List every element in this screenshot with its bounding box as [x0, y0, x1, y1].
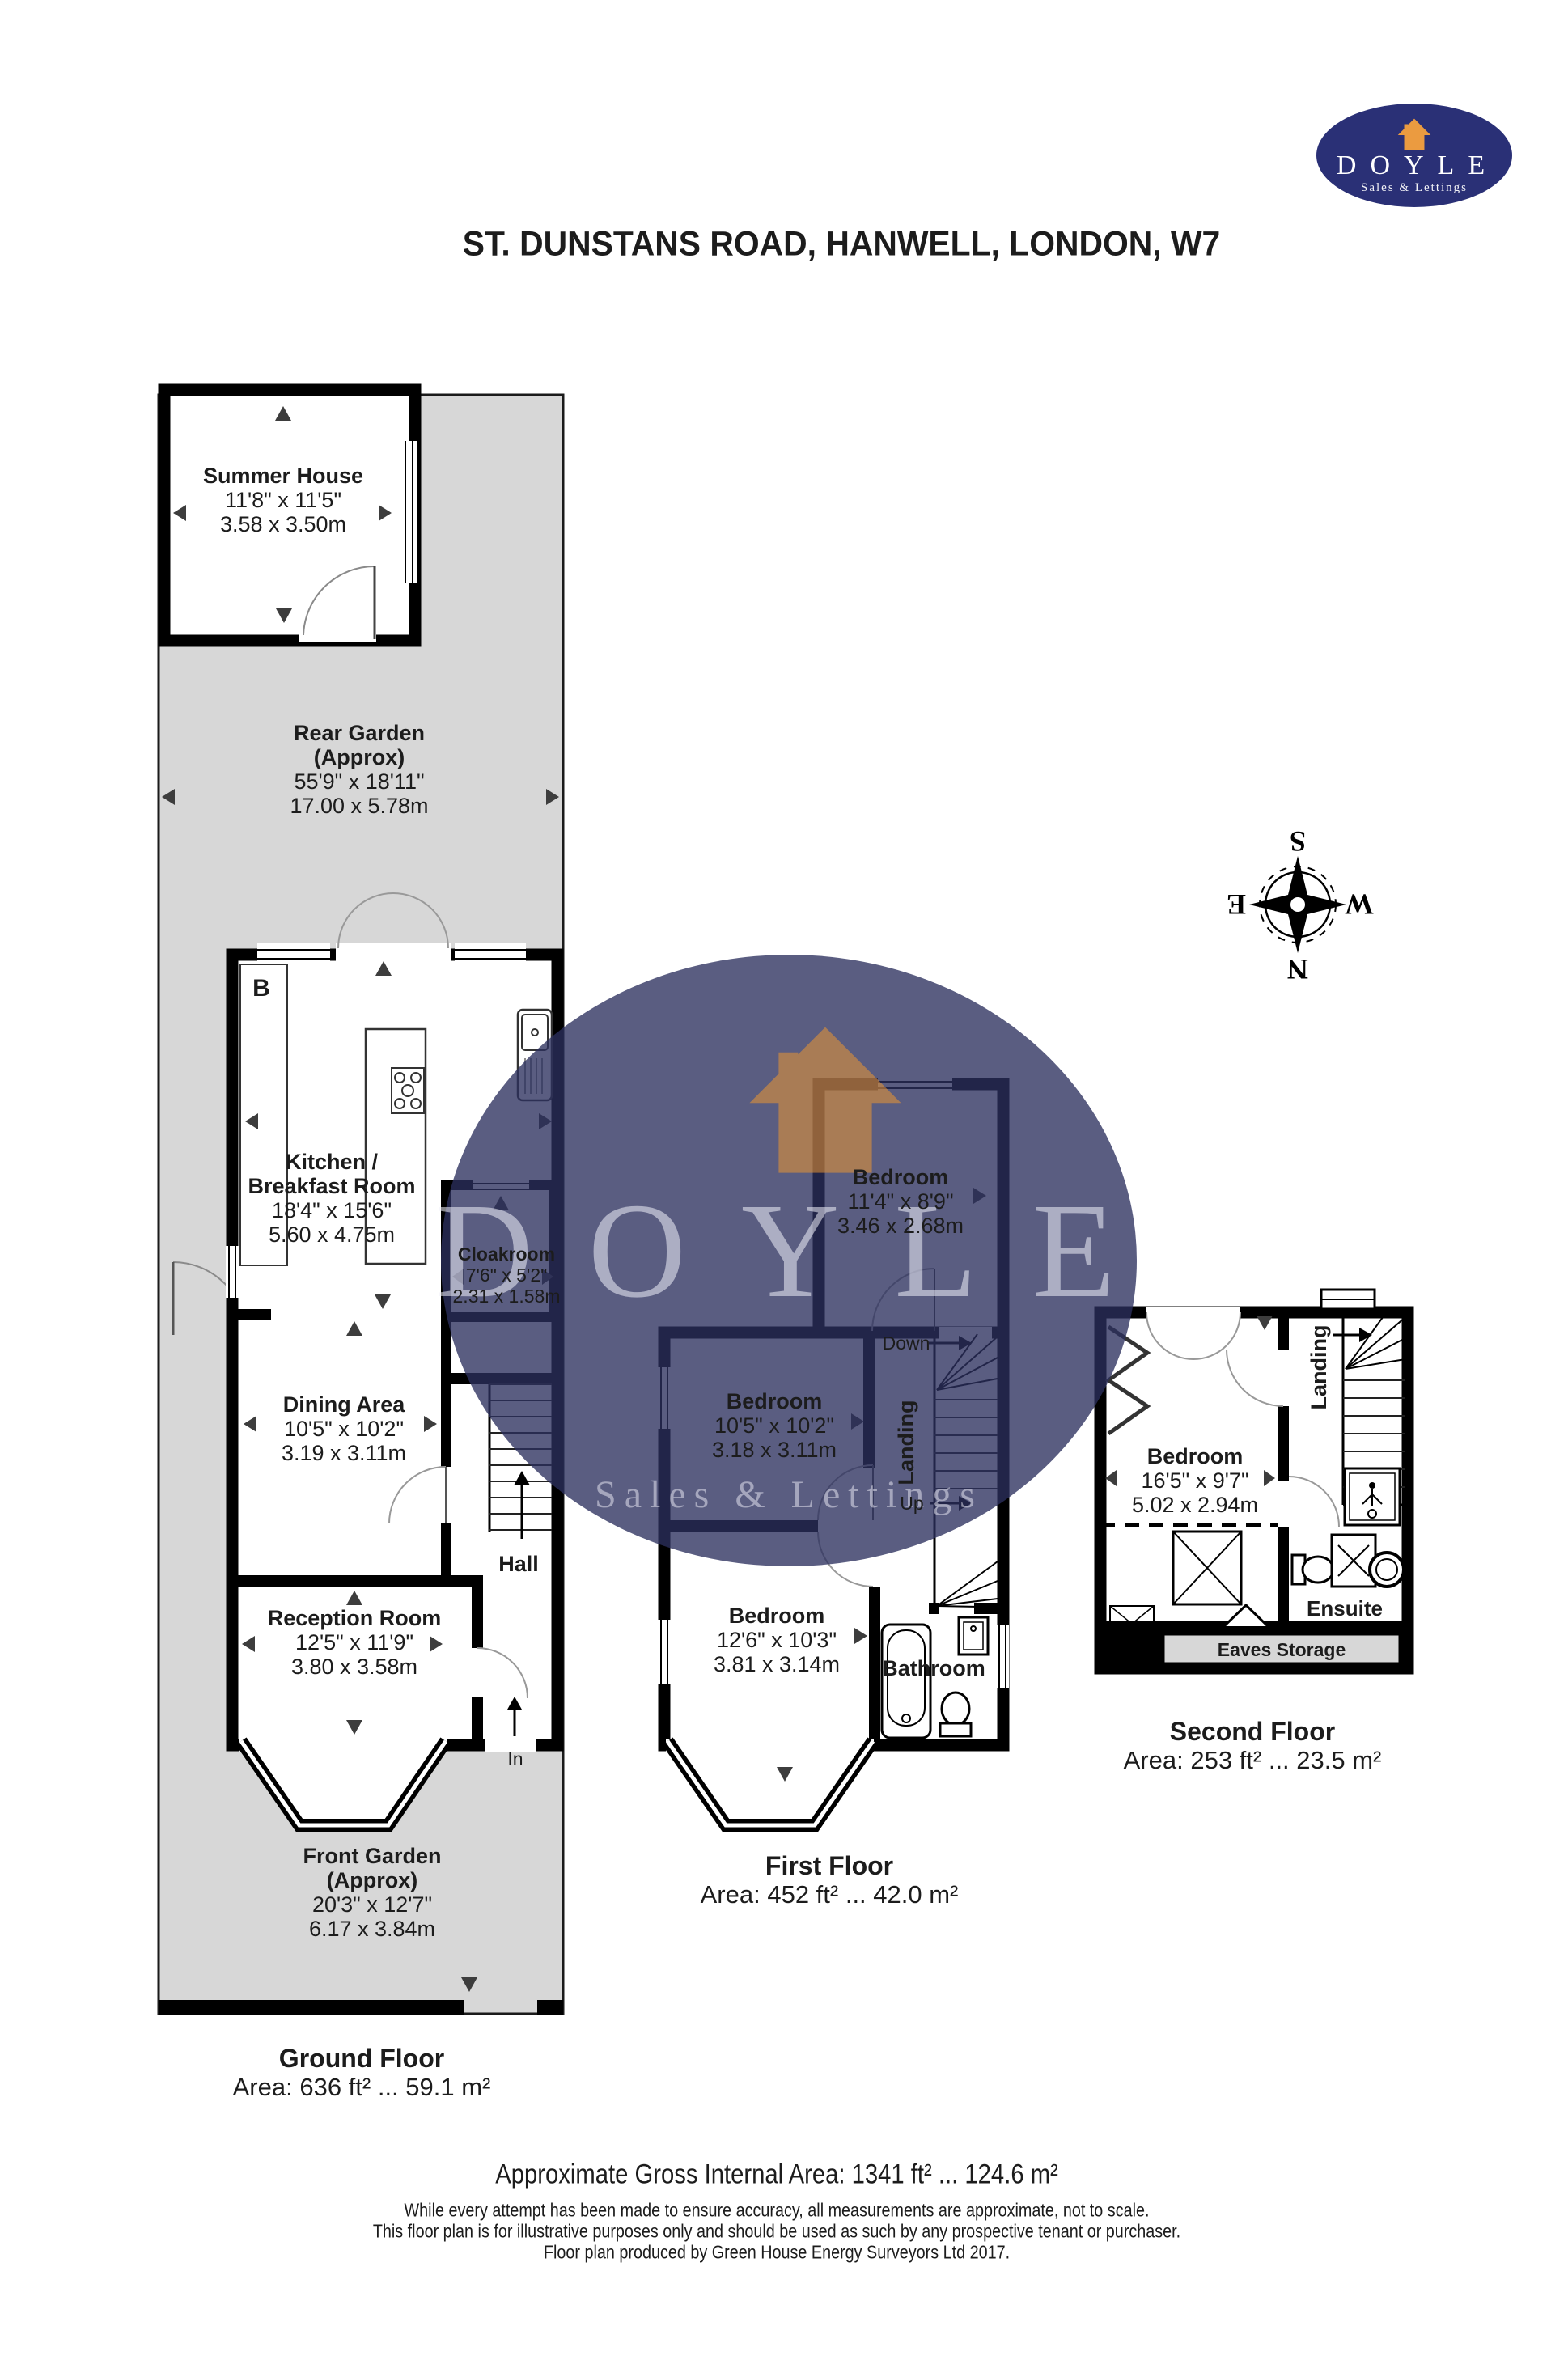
ensuite-toilet — [1303, 1557, 1333, 1583]
kitchen-label: Kitchen / Breakfast Room 18'4" x 15'6" 5… — [248, 1150, 415, 1247]
front-bedroom-window — [658, 1620, 671, 1684]
dining-right-wall — [441, 1317, 451, 1467]
front-boundary-wall-2 — [537, 2000, 563, 2015]
gross-area-text: Approximate Gross Internal Area: 1341 ft… — [495, 2159, 1058, 2191]
ground-floor-title: Ground Floor Area: 636 ft² ... 59.1 m² — [233, 2044, 491, 2101]
bathroom-label: Bathroom — [882, 1656, 985, 1680]
front-boundary-wall — [159, 2000, 464, 2015]
reception-label: Reception Room 12'5" x 11'9" 3.80 x 3.58… — [268, 1606, 442, 1679]
disclaimer-line-1: While every attempt has been made to ens… — [405, 2200, 1150, 2222]
compass-rose: S N E W — [1227, 825, 1374, 985]
bathroom-window — [996, 1625, 1009, 1688]
cloakroom-label: Cloakroom 7'6" x 5'2" 2.31 x 1.58m — [453, 1244, 561, 1307]
toilet — [942, 1693, 969, 1725]
eaves-storage-label: Eaves Storage — [1218, 1639, 1346, 1660]
sf-landing-label: Landing — [1307, 1325, 1331, 1410]
rear-bedroom-label: Bedroom 11'4" x 8'9" 3.46 x 2.68m — [837, 1165, 964, 1238]
hall-wall-upper — [472, 1587, 483, 1648]
reception-top-wall — [232, 1575, 483, 1587]
ensuite-label: Ensuite — [1307, 1596, 1383, 1621]
kitchen-dining-stub — [232, 1309, 271, 1320]
dining-label: Dining Area 10'5" x 10'2" 3.19 x 3.11m — [282, 1392, 406, 1465]
summer-house-label: Summer House 11'8" x 11'5" 3.58 x 3.50m — [203, 464, 363, 536]
side-window — [226, 1246, 239, 1298]
down-label: Down — [883, 1333, 930, 1354]
disclaimer-line-3: Floor plan produced by Green House Energ… — [544, 2242, 1010, 2264]
front-bedroom-label: Bedroom 12'6" x 10'3" 3.81 x 3.14m — [714, 1604, 840, 1676]
compass-e: E — [1227, 888, 1246, 921]
summer-house-window — [401, 441, 417, 583]
kitchen-window-right — [455, 943, 526, 964]
watermark-tagline: Sales & Lettings — [595, 1472, 983, 1517]
kitchen-window-left — [257, 943, 330, 964]
bathroom-left-wall — [869, 1587, 880, 1745]
ff-landing-label: Landing — [894, 1400, 918, 1485]
logo-tagline: Sales & Lettings — [1361, 181, 1468, 195]
front-garden-label: Front Garden (Approx) 20'3" x 12'7" 6.17… — [303, 1844, 441, 1941]
ensuite-basin — [1370, 1553, 1404, 1587]
entrance-label: In — [507, 1748, 523, 1769]
compass-s: S — [1290, 825, 1306, 858]
sf-landing-wall-mid — [1278, 1406, 1289, 1481]
first-floor-title: First Floor Area: 452 ft² ... 42.0 m² — [701, 1852, 959, 1909]
disclaimer-line-2: This floor plan is for illustrative purp… — [373, 2221, 1180, 2243]
boiler-label: B — [252, 977, 270, 1001]
floorplan-page: S N E W DOYLE Sales & Lettings ST. DUNST… — [0, 0, 1568, 2377]
hall-label: Hall — [498, 1552, 539, 1576]
sf-ensuite-wall — [1278, 1527, 1289, 1626]
second-floor-title: Second Floor Area: 253 ft² ... 23.5 m² — [1124, 1718, 1382, 1774]
logo-house-icon — [1392, 115, 1437, 157]
sf-landing-wall-top — [1278, 1312, 1289, 1350]
french-door-gap — [336, 943, 451, 964]
rear-garden-label: Rear Garden (Approx) 55'9" x 18'11" 17.0… — [290, 721, 428, 818]
compass-n: N — [1287, 953, 1308, 985]
compass-w: W — [1345, 888, 1374, 921]
up-label: Up — [900, 1493, 923, 1514]
doyle-logo: DOYLE Sales & Lettings — [1316, 104, 1512, 207]
hall-wall-lower — [472, 1697, 483, 1745]
middle-bedroom-label: Bedroom 10'5" x 10'2" 3.18 x 3.11m — [712, 1389, 837, 1462]
sf-bedroom-label: Bedroom 16'5" x 9'7" 5.02 x 2.94m — [1132, 1444, 1258, 1517]
summer-house-door-gap — [299, 629, 376, 642]
page-title: ST. DUNSTANS ROAD, HANWELL, LONDON, W7 — [463, 225, 1221, 265]
